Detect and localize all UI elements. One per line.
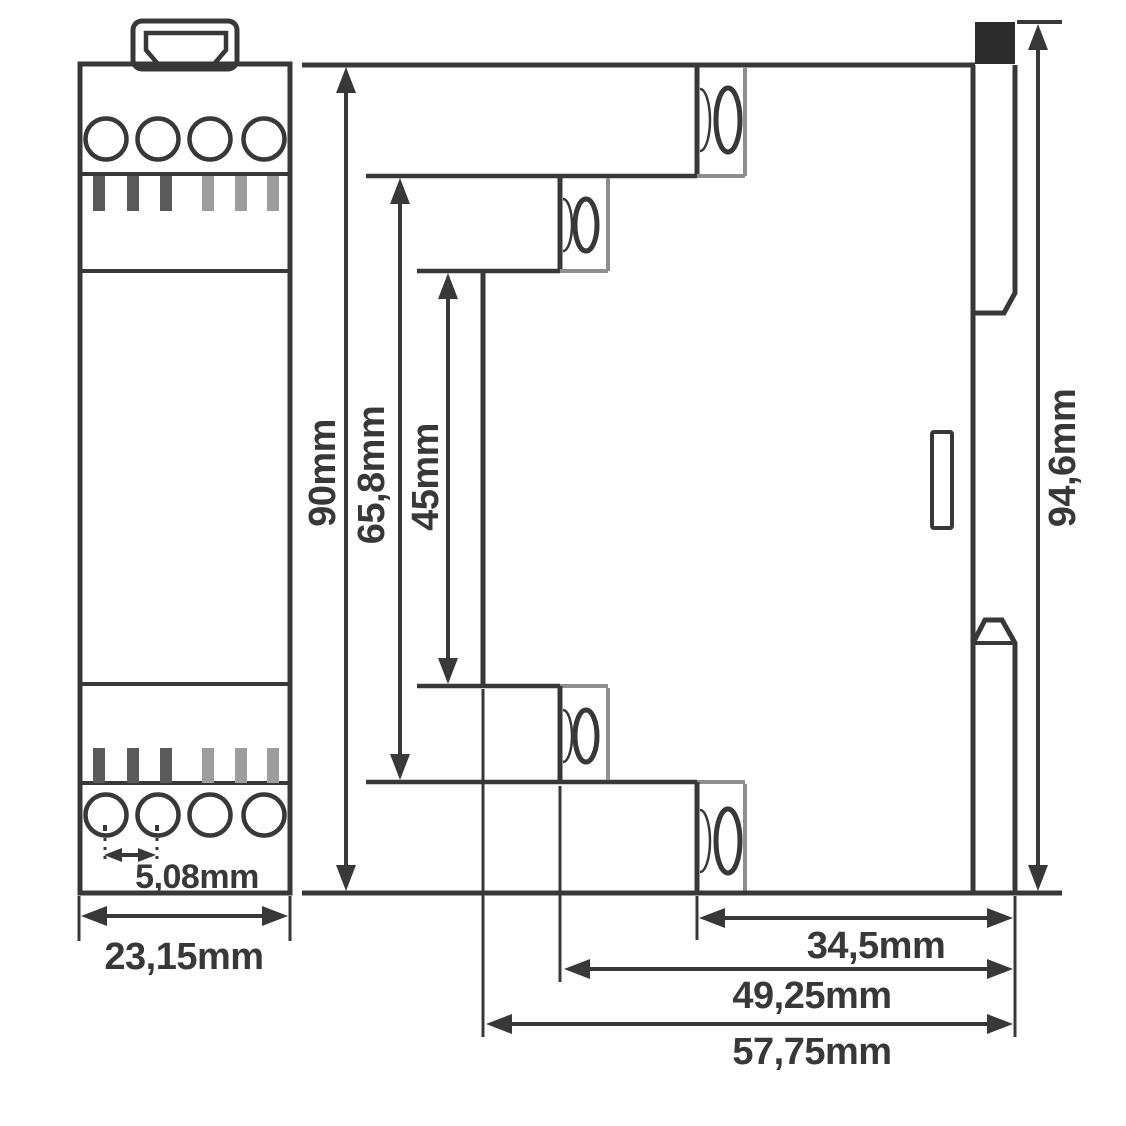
terminal-hole	[575, 199, 597, 251]
terminal-bar	[235, 176, 247, 211]
front-view: 5,08mm	[80, 21, 290, 896]
arrowhead-left	[486, 1014, 512, 1034]
top-terminal-circles	[86, 119, 285, 160]
terminal-bar	[267, 176, 279, 211]
terminal-hole	[716, 809, 740, 873]
dim-label-module-width: 23,15mm	[104, 936, 263, 978]
terminal-block-top-inner	[560, 176, 608, 271]
front-body	[80, 64, 290, 893]
terminal-circle	[244, 119, 285, 160]
dim-label-total-height: 94,6mm	[1042, 389, 1084, 528]
terminal-block-bottom-outer	[697, 782, 745, 893]
rail-slot	[932, 432, 952, 528]
arrowhead-up	[390, 178, 410, 204]
arrowhead-up	[336, 67, 356, 93]
pitch-dimension: 5,08mm	[103, 825, 259, 896]
dimension-drawing-svg: 5,08mm	[0, 0, 1126, 1126]
dimension-drawing-page: 5,08mm	[0, 0, 1126, 1126]
bottom-terminal-bars	[93, 748, 279, 783]
terminal-bar	[93, 176, 105, 211]
dim-label-depth-total: 57,75mm	[732, 1031, 891, 1073]
terminal-circle	[86, 119, 127, 160]
terminal-bar	[235, 748, 247, 783]
arrowhead-up	[438, 273, 458, 299]
dimension-90mm: 90mm	[302, 67, 356, 891]
dimension-65-8mm: 65,8mm	[351, 178, 410, 780]
terminal-bar	[202, 748, 214, 783]
terminal-circle	[244, 795, 285, 836]
arrowhead-left	[104, 848, 122, 862]
terminal-bar	[127, 748, 139, 783]
dimension-94-6mm: 94,6mm	[1017, 22, 1084, 891]
dimension-49-25mm: 49,25mm	[564, 959, 1013, 1017]
arrowhead-down	[1028, 865, 1048, 891]
terminal-hole-arc	[563, 710, 572, 762]
arrowhead-down	[336, 865, 356, 891]
terminal-block-top-outer	[697, 65, 745, 176]
din-jaw-lower	[973, 620, 1015, 891]
dimension-45mm: 45mm	[405, 273, 458, 684]
terminal-bar	[127, 176, 139, 211]
dim-label-pitch: 5,08mm	[135, 858, 259, 896]
terminal-hole	[716, 88, 740, 152]
dimension-34-5mm: 34,5mm	[699, 908, 1013, 967]
arrowhead-right	[262, 906, 288, 926]
top-terminal-bars	[93, 176, 279, 211]
din-jaw-upper	[973, 65, 1015, 313]
terminal-bar	[202, 176, 214, 211]
center-mark	[103, 825, 107, 831]
terminal-hole-arc	[563, 199, 572, 251]
dimension-23-15mm: 23,15mm	[79, 896, 290, 978]
dim-label-depth-mid: 49,25mm	[732, 975, 891, 1017]
terminal-circle	[190, 795, 231, 836]
din-clip-top-block	[975, 22, 1015, 64]
terminal-bar	[160, 176, 172, 211]
arrowhead-left	[81, 906, 107, 926]
arrowhead-up	[1028, 24, 1048, 50]
arrowhead-right	[987, 1014, 1013, 1034]
arrowhead-down	[390, 754, 410, 780]
arrowhead-left	[699, 908, 725, 928]
dim-label-module-height: 90mm	[302, 419, 344, 527]
dim-label-upper-height: 65,8mm	[351, 406, 393, 545]
terminal-bar	[160, 748, 172, 783]
dim-label-inner-height: 45mm	[405, 423, 447, 531]
center-mark	[155, 825, 159, 831]
arrowhead-right	[987, 959, 1013, 979]
terminal-circle	[138, 119, 179, 160]
dimension-57-75mm: 57,75mm	[486, 1014, 1013, 1073]
terminal-hole	[575, 710, 597, 762]
bottom-terminal-circles	[86, 795, 285, 836]
din-tab-inner	[146, 33, 226, 64]
arrowhead-left	[564, 959, 590, 979]
terminal-hole-arc	[700, 89, 710, 151]
dim-label-depth-rail: 34,5mm	[807, 925, 946, 967]
terminal-block-bottom-inner	[560, 686, 608, 782]
terminal-bar	[93, 748, 105, 783]
arrowhead-down	[438, 658, 458, 684]
terminal-hole-arc	[700, 810, 710, 872]
terminal-circle	[190, 119, 231, 160]
arrowhead-right	[987, 908, 1013, 928]
terminal-bar	[267, 748, 279, 783]
